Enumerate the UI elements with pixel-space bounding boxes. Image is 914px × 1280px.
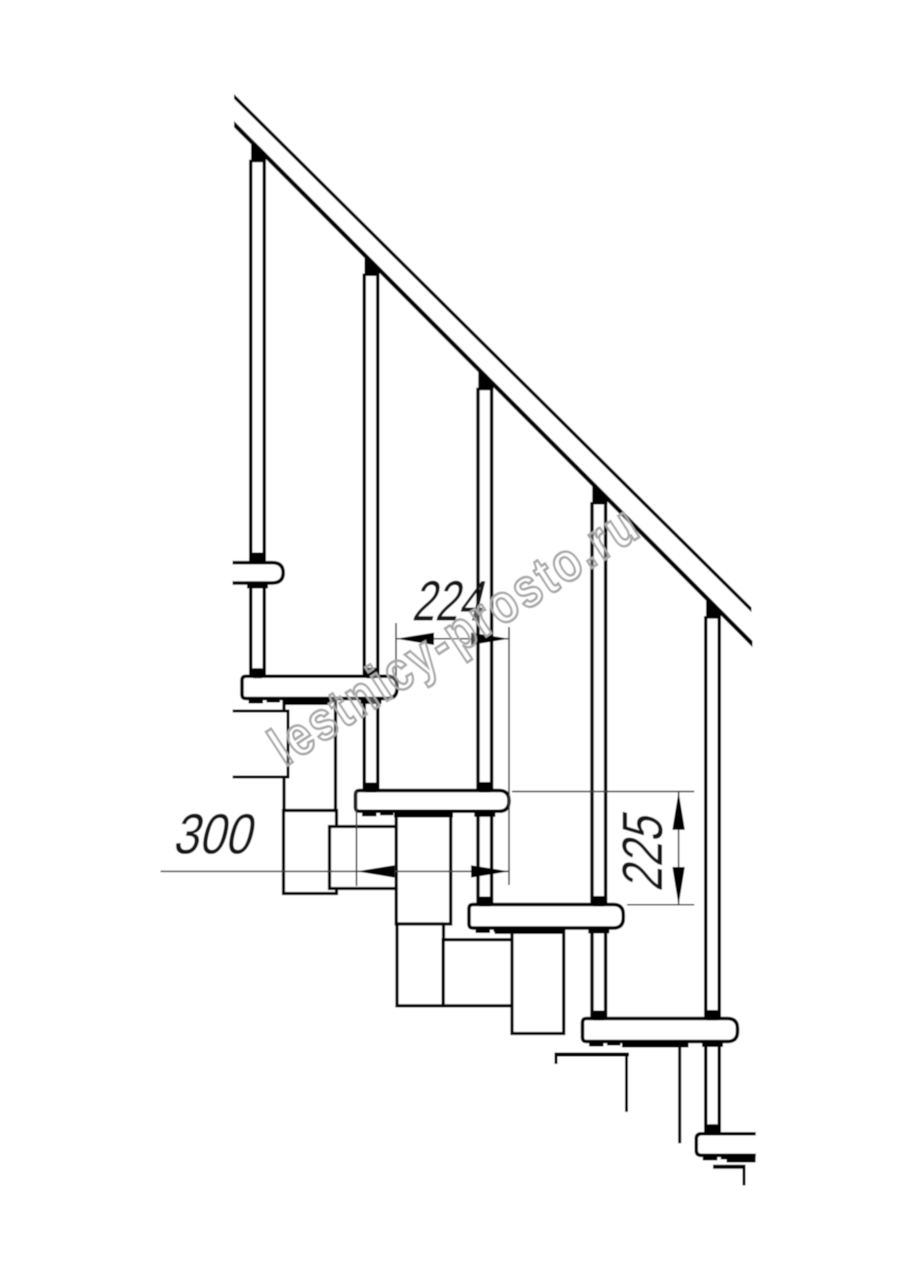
svg-text:300: 300	[169, 803, 263, 866]
svg-text:225: 225	[612, 805, 675, 895]
